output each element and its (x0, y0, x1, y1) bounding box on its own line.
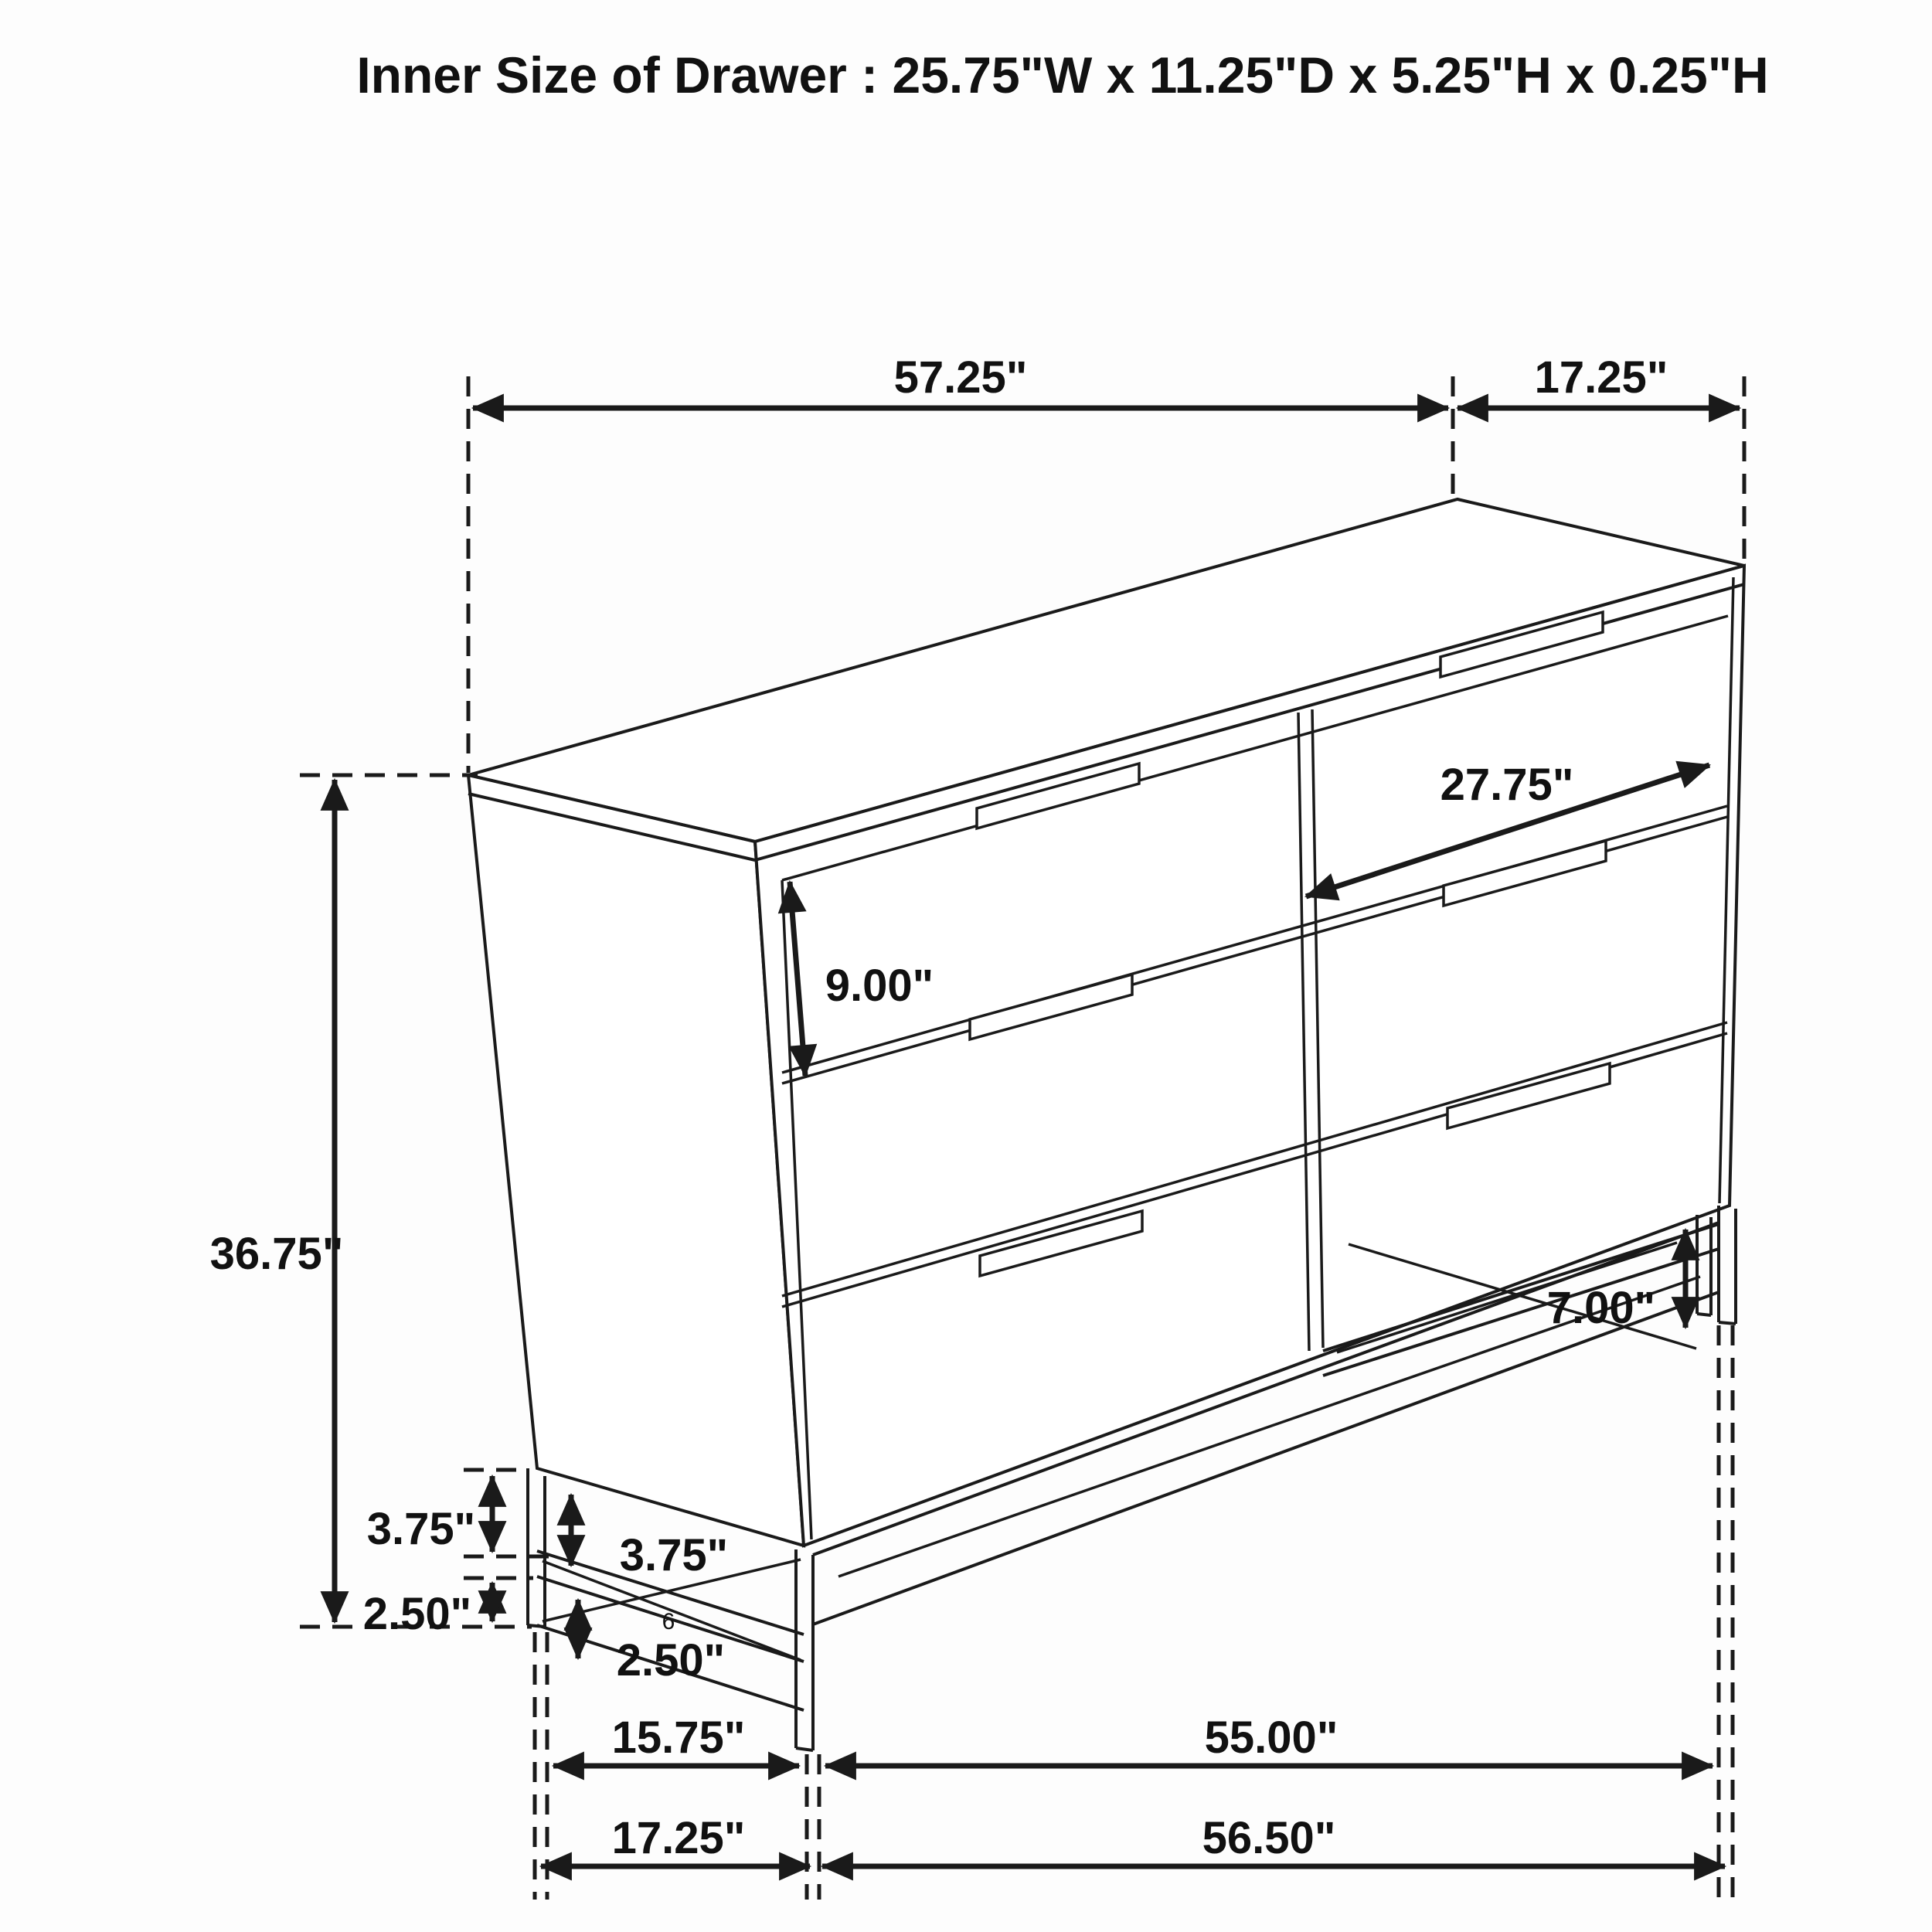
label-drawer-diagonal: 27.75" (1440, 760, 1574, 810)
leg-rear-left (528, 1468, 545, 1627)
label-drawer-height: 9.00" (825, 961, 934, 1011)
label-base-depth-inner: 15.75" (612, 1713, 746, 1763)
dresser-dimension-diagram: Inner Size of Drawer : 25.75"W x 11.25"D… (0, 0, 1932, 1932)
diagram-title: Inner Size of Drawer : 25.75"W x 11.25"D… (356, 46, 1768, 104)
label-front-stretcher: 2.50" (617, 1635, 725, 1685)
label-top-width: 57.25" (894, 352, 1028, 403)
left-side-panel (468, 775, 804, 1546)
cabinet-body (468, 499, 1744, 1546)
diagram-canvas: Inner Size of Drawer : 25.75"W x 11.25"D… (0, 0, 1932, 1932)
label-side-rail: 3.75" (367, 1504, 475, 1554)
label-overall-height: 36.75" (210, 1229, 344, 1279)
label-top-depth: 17.25" (1535, 352, 1668, 403)
label-base-depth-outer: 17.25" (612, 1813, 746, 1863)
label-front-rail: 3.75" (620, 1530, 728, 1580)
label-base-width-inner: 55.00" (1205, 1713, 1338, 1763)
stray-mark: 6 (662, 1609, 675, 1634)
label-base-width-outer: 56.50" (1202, 1813, 1336, 1863)
leg-front-right (1719, 1206, 1736, 1324)
leg-front-left (796, 1549, 813, 1750)
label-side-stretcher: 2.50" (363, 1589, 471, 1639)
label-leg-height: 7.00" (1547, 1283, 1655, 1333)
